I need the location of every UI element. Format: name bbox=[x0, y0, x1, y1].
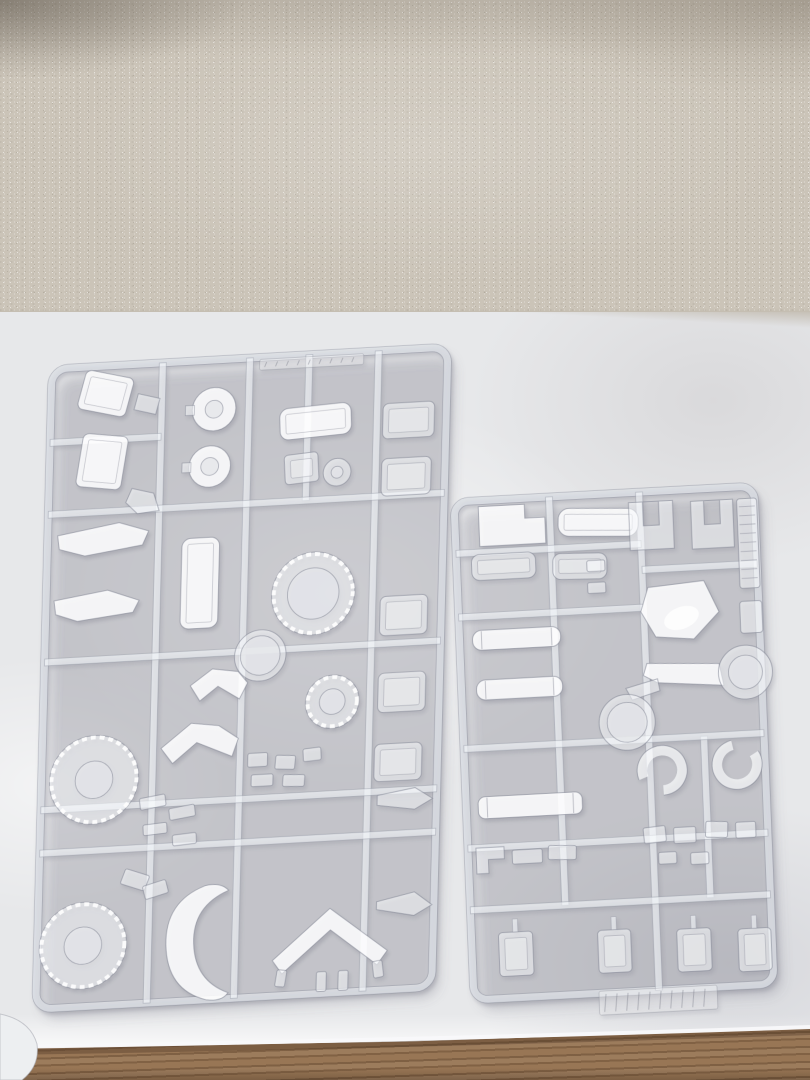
armor-box-part-detail bbox=[82, 440, 122, 484]
box-part-part-detail bbox=[683, 934, 706, 966]
ribbed-strip-part bbox=[736, 498, 760, 589]
cylinder-part bbox=[476, 676, 563, 701]
box-part-part-detail bbox=[604, 935, 626, 967]
bit-part bbox=[587, 560, 605, 572]
bracket-bit-part bbox=[275, 755, 296, 769]
bracket-bit-part bbox=[735, 821, 756, 838]
washer-part-hole bbox=[331, 466, 343, 478]
bracket-bit-part bbox=[282, 775, 305, 787]
bracket-bit-part bbox=[643, 825, 667, 844]
clear-sprue-right bbox=[454, 485, 786, 1021]
panel-part-detail bbox=[380, 748, 416, 776]
bracket-bit-part bbox=[674, 826, 697, 843]
scene-overlay bbox=[0, 0, 810, 1080]
box-part-part-gate bbox=[691, 915, 697, 928]
v-fin-tip-part bbox=[372, 960, 384, 978]
joint-bit-part bbox=[143, 822, 167, 836]
small-panel-part bbox=[740, 600, 763, 633]
bracket-part-detail bbox=[290, 458, 313, 478]
box-part-part-detail bbox=[505, 937, 528, 970]
v-fin-tip-part bbox=[274, 970, 287, 988]
bracket-bit-part bbox=[705, 821, 727, 837]
joint-bit-part bbox=[172, 832, 196, 846]
panel-part-detail bbox=[477, 558, 530, 575]
box-part-part-detail bbox=[744, 934, 766, 966]
bracket-bit-part bbox=[303, 747, 321, 762]
tray-part-detail bbox=[186, 543, 214, 623]
cloth-edge-shadow bbox=[0, 1032, 810, 1052]
cloth-fold bbox=[0, 1014, 37, 1080]
bracket-bit-part bbox=[512, 849, 543, 865]
box-part-part-gate bbox=[611, 917, 617, 930]
box-part-part-gate bbox=[751, 915, 757, 928]
bracket-bit-part bbox=[658, 851, 676, 864]
clear-sprue-left bbox=[36, 347, 454, 1018]
bit-part bbox=[588, 582, 606, 594]
stub-bit-part bbox=[338, 970, 348, 990]
bracket-bit-part bbox=[248, 752, 268, 767]
panel-part-detail bbox=[385, 600, 421, 630]
panel-part-detail bbox=[564, 514, 632, 530]
bracket-bit-part bbox=[548, 846, 576, 860]
bracket-bit-part bbox=[691, 852, 709, 865]
bracket-bit-part bbox=[251, 774, 273, 787]
rimmed-disc-part-tab bbox=[182, 463, 191, 473]
photo-of-clear-model-kit-sprues bbox=[0, 0, 810, 1080]
box-part-part-gate bbox=[512, 919, 518, 932]
rimmed-disc-part-tab bbox=[185, 405, 194, 415]
panel-part-detail bbox=[387, 462, 425, 490]
panel-part-detail bbox=[388, 407, 428, 433]
panel-part-detail bbox=[384, 677, 420, 707]
stub-bit-part bbox=[316, 971, 326, 991]
cylinder-part bbox=[472, 626, 561, 651]
